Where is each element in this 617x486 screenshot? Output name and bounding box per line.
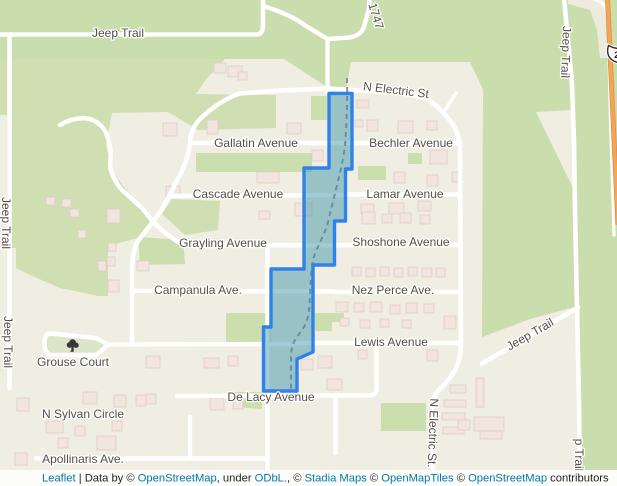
svg-text:De Lacy Avenue: De Lacy Avenue	[227, 390, 315, 404]
svg-text:N Sylvan Circle: N Sylvan Circle	[42, 407, 124, 421]
svg-text:Jeep Trail: Jeep Trail	[92, 26, 144, 40]
svg-text:Campanula Ave.: Campanula Ave.	[154, 283, 242, 297]
svg-text:Bechler Avenue: Bechler Avenue	[369, 136, 453, 150]
svg-text:Lamar Avenue: Lamar Avenue	[366, 187, 443, 201]
svg-text:Jeep Trail: Jeep Trail	[558, 26, 574, 78]
svg-text:Jeep Trail: Jeep Trail	[0, 197, 13, 249]
svg-text:Cascade Avenue: Cascade Avenue	[193, 187, 284, 201]
svg-text:Grayling Avenue: Grayling Avenue	[179, 236, 267, 250]
svg-text:Jeep Trail: Jeep Trail	[1, 316, 15, 368]
svg-text:N Electric St.: N Electric St.	[425, 398, 441, 468]
svg-text:Lewis Avenue: Lewis Avenue	[354, 335, 428, 349]
svg-text:Gallatin Avenue: Gallatin Avenue	[214, 136, 298, 150]
svg-text:Leaflet | Data by © OpenStreet: Leaflet | Data by © OpenStreetMap, under…	[42, 473, 609, 485]
svg-text:Nez Perce Ave.: Nez Perce Ave.	[352, 283, 435, 297]
svg-text:Grouse Court: Grouse Court	[37, 355, 110, 369]
svg-text:p Trail: p Trail	[572, 439, 586, 472]
svg-text:Shoshone Avenue: Shoshone Avenue	[352, 235, 450, 249]
svg-text:Apollinaris Ave.: Apollinaris Ave.	[42, 452, 124, 466]
